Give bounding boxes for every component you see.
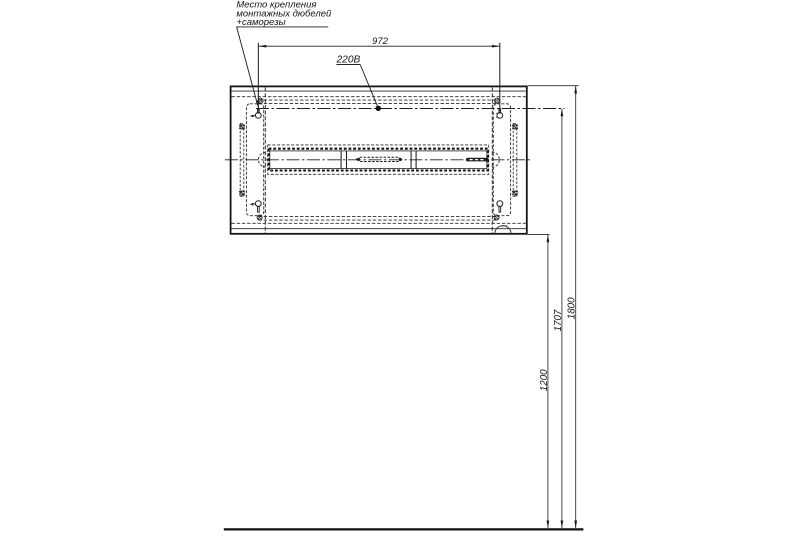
svg-text:1200: 1200 — [539, 369, 550, 391]
svg-text:1800: 1800 — [567, 297, 578, 319]
svg-text:1707: 1707 — [553, 309, 564, 331]
svg-text:972: 972 — [372, 36, 389, 47]
svg-text:220В: 220В — [336, 55, 361, 66]
